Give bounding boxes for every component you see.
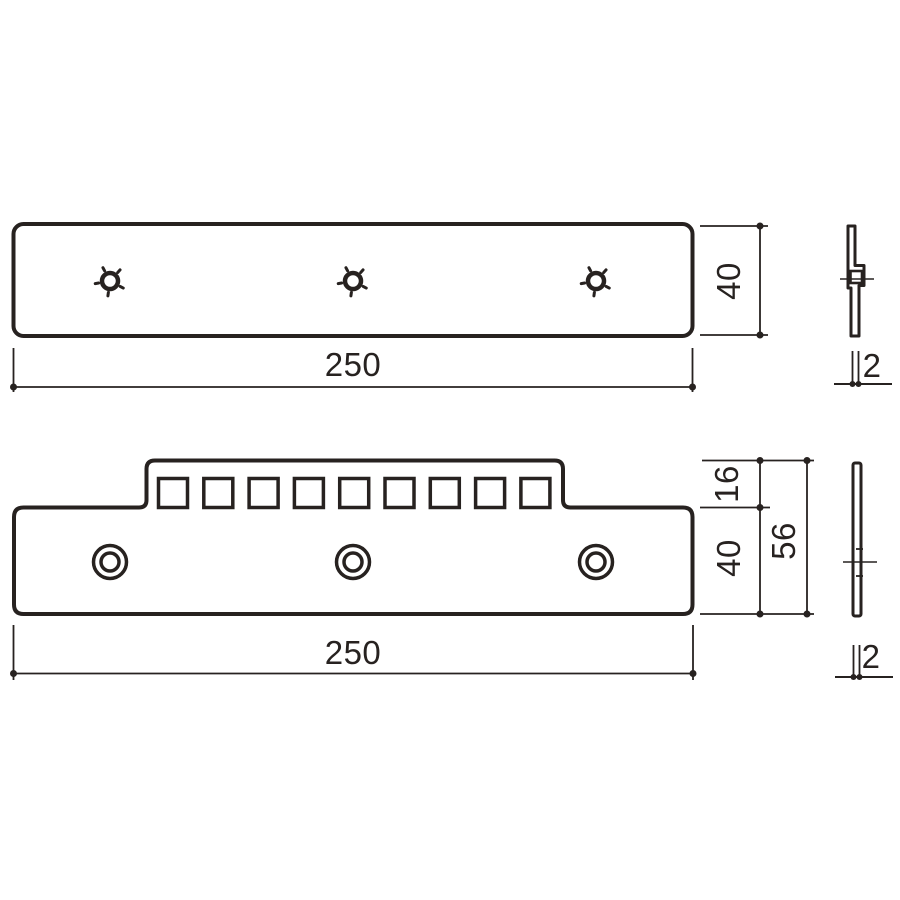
top-height-label: 40	[710, 241, 748, 321]
square-hole	[430, 479, 459, 508]
square-hole	[476, 479, 505, 508]
square-hole	[521, 479, 550, 508]
bottom-plate-square-holes	[159, 479, 550, 508]
top-width-label: 250	[313, 346, 393, 384]
square-hole	[385, 479, 414, 508]
square-hole	[249, 479, 278, 508]
top-thickness-label: 2	[857, 347, 887, 385]
burring-hole	[580, 546, 613, 579]
square-hole	[340, 479, 369, 508]
square-hole	[159, 479, 188, 508]
bottom-width-label: 250	[313, 634, 393, 672]
top-plate-outline	[14, 224, 693, 336]
burring-hole	[337, 546, 370, 579]
bottom-body-height-label: 40	[710, 518, 748, 598]
bottom-side-profile	[853, 463, 861, 616]
burring-hole	[94, 546, 127, 579]
bottom-tab-height-label: 16	[708, 444, 746, 524]
square-hole	[294, 479, 323, 508]
top-side-boss	[851, 271, 863, 283]
square-hole	[204, 479, 233, 508]
bottom-thickness-label: 2	[856, 638, 886, 676]
bottom-total-height-label: 56	[765, 501, 803, 581]
bottom-plate-view	[10, 457, 814, 680]
technical-drawing	[0, 0, 900, 900]
